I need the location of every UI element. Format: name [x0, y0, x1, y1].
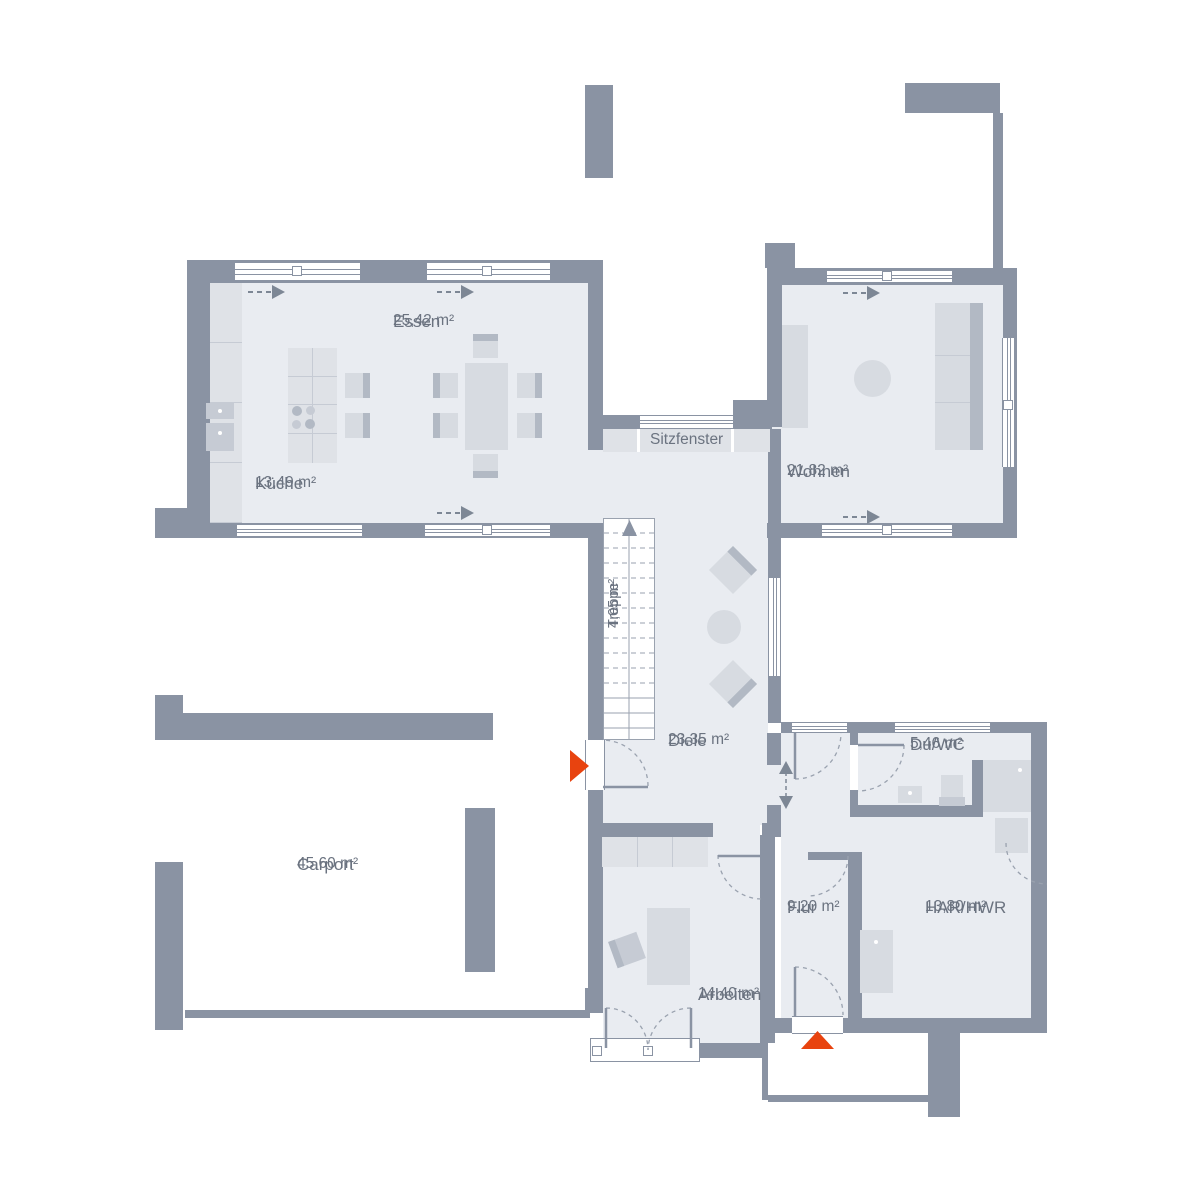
door-swing-har — [1006, 843, 1047, 884]
stair-direction-arrow-icon — [622, 520, 637, 536]
door-swing-terrace-left — [606, 1008, 648, 1050]
door-swing-duwc — [858, 745, 904, 791]
room-area: 4,05 m² — [606, 579, 623, 628]
door-swing-arbeiten — [718, 855, 762, 899]
passage-arrow — [779, 761, 793, 809]
floor-plan: Essen 25,42 m² Küche 13,49 m² Wohnen 21,… — [0, 0, 1200, 1200]
room-area: 5,46 m² — [910, 735, 963, 754]
room-area: 13,49 m² — [255, 474, 316, 493]
door-swing-terrace-right — [648, 1008, 691, 1050]
room-area: 21,82 m² — [787, 462, 848, 481]
room-area: 14,40 m² — [698, 985, 759, 1004]
room-area: 9,20 m² — [787, 898, 840, 917]
door-swing-flur — [808, 856, 848, 896]
window-opening-arrows — [248, 292, 867, 517]
room-area: 25,42 m² — [393, 312, 454, 331]
door-swing-side-entrance — [795, 967, 843, 1015]
door-swings — [602, 733, 1047, 1050]
room-area: 13,80 m² — [925, 898, 986, 917]
plan-annotations — [0, 0, 1200, 1200]
main-entrance-arrow-icon — [570, 750, 589, 782]
room-area: 45,60 m² — [297, 855, 358, 874]
window-arrow-heads — [272, 285, 880, 524]
side-entrance-arrow-icon — [801, 1031, 834, 1049]
door-swing-entrance — [602, 740, 648, 786]
label-sitzfenster: Sitzfenster — [650, 431, 723, 449]
stair-treads — [604, 518, 654, 740]
door-swing-diele — [795, 733, 841, 779]
room-area: 23,35 m² — [668, 731, 729, 750]
